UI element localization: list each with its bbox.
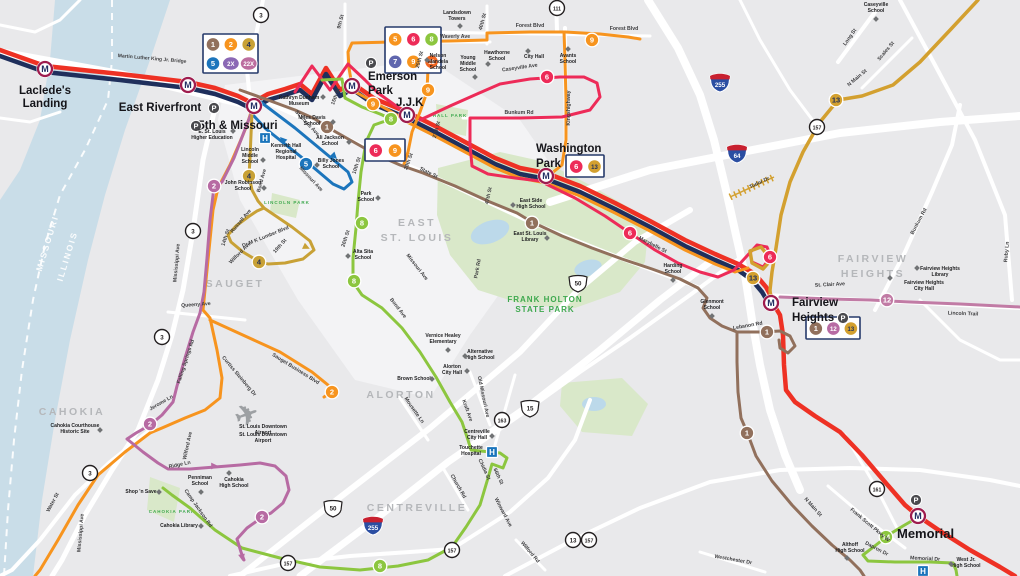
route-badge-number: 9	[371, 100, 375, 109]
route-badge-number: 2	[229, 40, 233, 49]
route-badge-number: 13	[749, 274, 757, 283]
parking-icon: P	[208, 102, 219, 113]
station-label: East Riverfront	[119, 102, 202, 114]
poi-text: School	[235, 186, 252, 192]
route-badge-number: 5	[211, 59, 215, 68]
highway-shield-157: 157	[281, 556, 296, 571]
area-label: FAIRVIEW	[838, 253, 909, 265]
route-badge-number: 1	[765, 328, 769, 337]
station-label: Landing	[23, 98, 68, 110]
route-badge-number: 1	[211, 40, 215, 49]
route-badge-number: 6	[628, 229, 632, 238]
poi-text: School	[304, 121, 321, 127]
poi-text: Historic Site	[60, 429, 89, 435]
poi-text: Library	[522, 237, 539, 243]
area-label: HEIGHTS	[841, 268, 905, 280]
shield-number: 3	[191, 228, 195, 235]
airport-label: Airport	[255, 438, 272, 444]
route-badge-number: 1	[530, 219, 534, 228]
route-badge-number: 8	[389, 115, 393, 124]
poi-text: School	[460, 67, 477, 73]
parking-p: P	[368, 59, 373, 68]
poi-text: High School	[516, 204, 546, 210]
route-badge-number: 2	[260, 513, 264, 522]
poi-text: Library	[932, 272, 949, 278]
parking-p: P	[211, 104, 216, 113]
shield-number: 157	[284, 561, 293, 567]
parking-icon: P	[365, 57, 376, 68]
route-badge-6: 6	[763, 250, 777, 264]
route-badge-number: 2	[148, 420, 152, 429]
park-label: STATE PARK	[515, 305, 574, 314]
route-badge-number: 9	[393, 146, 397, 155]
poi-text: School	[192, 481, 209, 487]
poi-text: City Hall	[914, 286, 935, 292]
poi-label: Brown School	[397, 376, 435, 382]
poi-text: Towers	[448, 16, 465, 22]
area-label: EAST	[398, 217, 436, 229]
metrolink-m: M	[542, 171, 550, 181]
hospital-icon: H	[260, 133, 271, 144]
poi-text: Brown School	[397, 376, 431, 382]
shield-number: 255	[368, 525, 379, 532]
park-label: CAHOKIA PARK	[149, 509, 196, 514]
route-badge-number: 6	[374, 146, 378, 155]
shield-number: 111	[553, 6, 561, 12]
poi-text: School	[355, 255, 372, 261]
station-label: Laclede's	[19, 85, 71, 97]
route-badge-number: 12	[830, 327, 837, 333]
poi-text: School	[704, 305, 721, 311]
route-badge-number: 1	[745, 429, 749, 438]
highway-shield-163: 163	[495, 413, 510, 428]
metrolink-m: M	[403, 110, 411, 120]
metrolink-station-icon: M	[343, 77, 360, 94]
metrolink-m: M	[767, 298, 775, 308]
route-badge-number: 13	[848, 327, 855, 333]
parking-p: P	[840, 314, 845, 323]
area-label: ALORTON	[366, 389, 435, 401]
poi-text: School	[489, 56, 506, 62]
route-badge-6: 6	[540, 70, 554, 84]
route-badge-8: 8	[355, 216, 369, 230]
shield-number: 161	[873, 487, 882, 493]
station-label: Washington	[536, 143, 601, 155]
poi-text: City Hall	[442, 370, 463, 376]
route-badge-2: 2	[207, 179, 221, 193]
route-badge-8: 8	[373, 559, 387, 573]
station-label: J.J.K	[396, 97, 424, 109]
parking-icon: P	[910, 494, 921, 505]
poi-text: City Hall	[524, 54, 545, 60]
metrolink-m: M	[348, 81, 356, 91]
poi-text: Higher Education	[191, 135, 232, 141]
station-label: Memorial	[897, 526, 954, 541]
poi-text: School	[868, 8, 885, 14]
route-badge-2: 2	[255, 510, 269, 524]
poi-text: School	[322, 141, 339, 147]
station-label: Emerson	[368, 71, 417, 83]
shield-number: 15	[527, 406, 534, 413]
metrolink-station-icon: M	[909, 507, 926, 524]
highway-shield-3: 3	[83, 466, 98, 481]
route-badge-number: 13	[591, 165, 598, 171]
route-badge-2: 2	[143, 417, 157, 431]
metrolink-station-icon: M	[245, 97, 262, 114]
street-label: Kingshighway	[566, 90, 572, 125]
route-badge-1: 1	[760, 325, 774, 339]
shield-number: 163	[498, 418, 507, 424]
highway-shield-157: 157	[445, 543, 460, 558]
poi-text: City Hall	[467, 435, 488, 441]
route-badge-number: 6	[545, 73, 549, 82]
poi-text: School	[560, 59, 577, 65]
street-label: Waverly Ave	[440, 34, 470, 40]
jjk-routes: 69	[365, 139, 405, 161]
poi-text: School	[323, 164, 340, 170]
poi-text: Cahokia Library	[160, 523, 198, 529]
poi-text: Elementary	[430, 339, 457, 345]
poi-text: High School	[465, 355, 495, 361]
metrolink-station-icon: M	[179, 76, 196, 93]
route-badge-number: 9	[590, 36, 594, 45]
route-badge-number: 2	[212, 182, 216, 191]
route-badge-8: 8	[384, 112, 398, 126]
route-badge-number: 2X	[227, 62, 234, 68]
route-badge-9: 9	[421, 83, 435, 97]
area-label: ST. LOUIS	[381, 232, 454, 244]
route-badge-13: 13	[746, 271, 760, 285]
route-badge-2: 2	[325, 385, 339, 399]
poi-text: School	[665, 269, 682, 275]
street-label: Lincoln Trail	[948, 310, 979, 317]
poi-text: Hospital	[461, 451, 481, 457]
shield-number: 157	[585, 538, 594, 544]
route-badge-number: 6	[411, 35, 415, 44]
shield-number: 3	[160, 334, 164, 341]
route-badge-9: 9	[366, 97, 380, 111]
route-badge-6: 6	[623, 226, 637, 240]
highway-shield-111: 111	[550, 1, 565, 16]
station-label: Park	[368, 85, 394, 97]
poi-text: Airport	[255, 430, 272, 436]
route-badge-number: 5	[393, 35, 397, 44]
station-label: Fairview	[792, 297, 838, 309]
shield-number: 64	[734, 153, 741, 160]
station-label: Park	[536, 158, 562, 170]
area-label: SAUGET	[206, 278, 265, 290]
route-badge-number: 2	[330, 388, 334, 397]
poi-text: High School	[951, 563, 981, 569]
park-label: HALL PARK	[433, 113, 468, 118]
route-badge-number: 13	[832, 96, 840, 105]
route-badge-number: 12	[883, 296, 891, 305]
route-badge-number: 8	[360, 219, 364, 228]
street-label: Forest Blvd	[610, 26, 639, 32]
route-badge-number: 9	[426, 86, 430, 95]
hospital-h: H	[489, 448, 495, 457]
parking-p: P	[913, 496, 918, 505]
route-badge-number: 6	[768, 253, 772, 262]
shield-number: 3	[259, 12, 263, 19]
shield-number: 13	[570, 537, 577, 544]
poi-label: AlternativeHigh School	[462, 349, 495, 361]
area-label: CENTREVILLE	[367, 502, 467, 514]
street-label: Forest Blvd	[516, 23, 545, 29]
hospital-icon: H	[487, 447, 498, 458]
highway-shield-13: 13	[566, 533, 581, 548]
route-badge-number: 22X	[243, 62, 254, 68]
east-riverfront-routes: 12452X22X	[203, 34, 258, 73]
parking-icon: P	[837, 312, 848, 323]
shield-number: 50	[330, 506, 337, 513]
washington-park-routes: 613	[566, 155, 604, 177]
highway-shield-3: 3	[254, 8, 269, 23]
park-label: LINCOLN PARK	[264, 200, 310, 205]
poi-text: Shop 'n Save	[125, 489, 156, 495]
route-badge-1: 1	[740, 426, 754, 440]
poi-label: Cahokia Library	[160, 523, 204, 529]
poi-text: High School	[835, 548, 865, 554]
route-badge-number: 1	[325, 123, 329, 132]
route-badge-1: 1	[525, 216, 539, 230]
route-badge-4: 4	[252, 255, 266, 269]
station-label: Heights	[792, 312, 834, 324]
street-label: Bunkum Rd	[504, 110, 533, 116]
highway-shield-161: 161	[870, 482, 885, 497]
metrolink-station-icon: M	[762, 294, 779, 311]
highway-shield-157: 157	[582, 533, 597, 548]
poi-text: High School	[219, 483, 249, 489]
route-badge-13: 13	[829, 93, 843, 107]
transit-map[interactable]: MISSOURIILLINOISSAUGETCAHOKIAEASTST. LOU…	[0, 0, 1020, 576]
shield-number: 255	[715, 82, 726, 89]
route-badge-number: 8	[352, 277, 356, 286]
metrolink-m: M	[184, 80, 192, 90]
metrolink-m: M	[250, 101, 258, 111]
hospital-h: H	[920, 567, 926, 576]
shield-number: 157	[813, 125, 822, 131]
shield-number: 3	[88, 470, 92, 477]
route-badge-9: 9	[585, 33, 599, 47]
route-badge-number: 7	[393, 57, 397, 66]
highway-shield-3: 3	[155, 330, 170, 345]
metrolink-station-icon: M	[36, 60, 53, 77]
hospital-h: H	[262, 134, 268, 143]
route-badge-number: 8	[429, 35, 433, 44]
park-label: FRANK HOLTON	[507, 295, 582, 304]
transit-map-canvas[interactable]: MISSOURIILLINOISSAUGETCAHOKIAEASTST. LOU…	[0, 0, 1020, 576]
shield-number: 50	[575, 281, 582, 288]
poi-text: School	[242, 159, 259, 165]
area-label: CAHOKIA	[39, 406, 106, 418]
poi-text: Museum	[289, 101, 310, 107]
route-badge-number: 1	[814, 324, 818, 333]
route-badge-number: 6	[574, 162, 578, 171]
poi-text: Hospital	[276, 155, 296, 161]
route-badge-number: 8	[378, 562, 382, 571]
hospital-icon: H	[918, 566, 929, 576]
highway-shield-3: 3	[186, 224, 201, 239]
route-badge-12: 12	[880, 293, 894, 307]
poi-label: TouchetteHospital	[459, 445, 483, 457]
shield-number: 157	[448, 548, 457, 554]
highway-shield-157: 157	[810, 120, 825, 135]
metrolink-m: M	[41, 64, 49, 74]
poi-text: School	[358, 197, 375, 203]
poi-label: Shop 'n Save	[125, 489, 161, 495]
metrolink-m: M	[914, 511, 922, 521]
poi-text: School	[430, 65, 447, 71]
route-badge-8: 8	[347, 274, 361, 288]
